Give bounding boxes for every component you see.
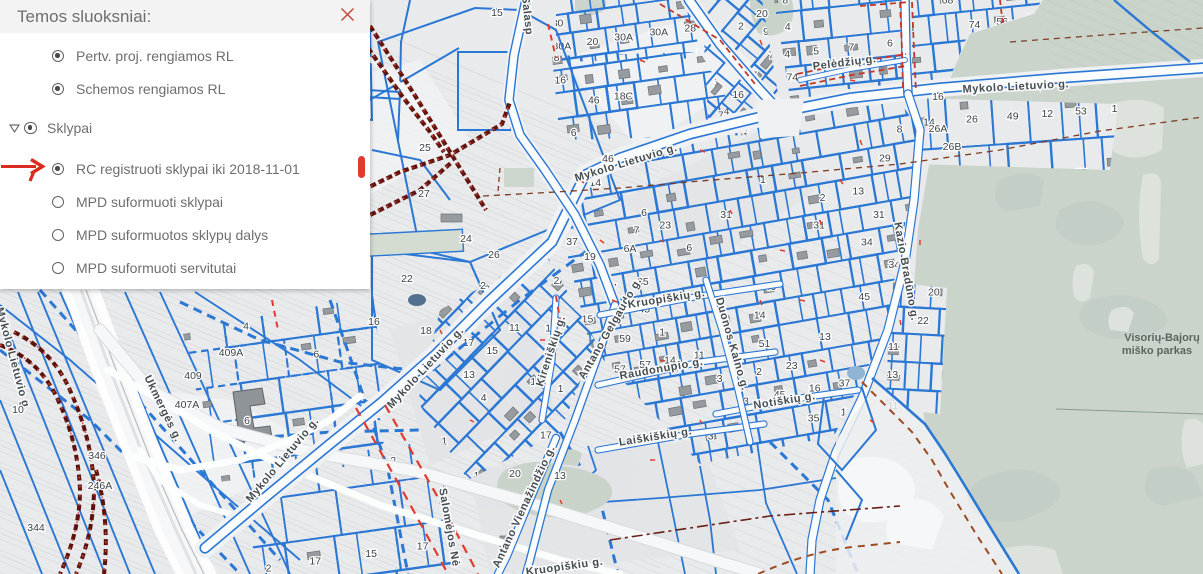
svg-text:20: 20 xyxy=(756,8,768,20)
svg-text:2: 2 xyxy=(820,192,826,204)
svg-text:17: 17 xyxy=(309,556,321,568)
svg-text:Visorių-Bajorų: Visorių-Bajorų xyxy=(1124,332,1200,344)
svg-text:18C: 18C xyxy=(614,90,634,102)
svg-text:20: 20 xyxy=(928,287,940,299)
svg-text:13: 13 xyxy=(463,369,475,381)
svg-text:13: 13 xyxy=(819,331,831,343)
svg-text:46: 46 xyxy=(602,153,614,165)
svg-text:6: 6 xyxy=(641,207,647,219)
svg-text:74: 74 xyxy=(969,19,981,31)
svg-text:11: 11 xyxy=(509,322,520,334)
svg-text:16: 16 xyxy=(554,75,566,87)
svg-text:11: 11 xyxy=(888,341,899,353)
svg-text:46: 46 xyxy=(588,95,600,107)
svg-text:31: 31 xyxy=(813,219,825,231)
svg-text:8: 8 xyxy=(897,123,903,135)
svg-text:246A: 246A xyxy=(88,480,113,492)
svg-text:20: 20 xyxy=(587,36,599,48)
svg-text:17: 17 xyxy=(417,541,429,553)
svg-text:23: 23 xyxy=(659,220,671,232)
svg-text:12: 12 xyxy=(1041,108,1053,120)
svg-text:1: 1 xyxy=(659,327,665,339)
svg-text:2: 2 xyxy=(738,20,744,32)
svg-text:13: 13 xyxy=(554,470,566,482)
svg-text:18: 18 xyxy=(420,325,432,337)
svg-text:6: 6 xyxy=(686,242,692,254)
svg-text:14: 14 xyxy=(754,309,766,321)
svg-text:13: 13 xyxy=(852,186,864,198)
svg-text:16: 16 xyxy=(932,91,944,103)
svg-text:19: 19 xyxy=(584,251,596,263)
svg-text:4: 4 xyxy=(785,21,791,33)
svg-text:7: 7 xyxy=(634,225,640,237)
svg-text:344: 344 xyxy=(27,522,45,534)
svg-text:31: 31 xyxy=(873,209,885,221)
svg-text:2: 2 xyxy=(266,562,272,574)
svg-text:miško parkas: miško parkas xyxy=(1122,345,1192,357)
svg-text:16: 16 xyxy=(732,89,744,101)
svg-text:37: 37 xyxy=(839,377,851,389)
svg-text:407A: 407A xyxy=(175,399,200,411)
svg-text:3: 3 xyxy=(717,373,723,385)
svg-text:37: 37 xyxy=(566,236,578,248)
svg-text:49: 49 xyxy=(1007,110,1019,122)
svg-text:8: 8 xyxy=(782,0,788,6)
svg-text:26A: 26A xyxy=(929,123,948,135)
svg-text:4: 4 xyxy=(481,392,487,404)
svg-text:28: 28 xyxy=(684,22,696,34)
svg-text:51: 51 xyxy=(759,338,771,350)
svg-text:2: 2 xyxy=(480,280,486,292)
svg-text:6: 6 xyxy=(244,415,250,427)
svg-text:45: 45 xyxy=(858,291,870,303)
svg-text:30A: 30A xyxy=(649,27,668,39)
svg-text:6A: 6A xyxy=(624,243,637,255)
svg-text:30A: 30A xyxy=(614,32,633,44)
svg-text:25: 25 xyxy=(419,142,431,154)
svg-text:2: 2 xyxy=(756,366,762,378)
svg-text:27: 27 xyxy=(418,188,430,200)
svg-text:20: 20 xyxy=(509,468,521,480)
svg-text:26: 26 xyxy=(966,113,978,125)
svg-text:68: 68 xyxy=(942,0,954,6)
svg-text:26: 26 xyxy=(488,249,500,261)
svg-text:53: 53 xyxy=(1075,106,1087,118)
svg-text:22: 22 xyxy=(401,273,413,285)
svg-text:15: 15 xyxy=(486,345,498,357)
svg-text:7: 7 xyxy=(848,42,854,54)
svg-text:6: 6 xyxy=(571,127,577,139)
svg-text:409: 409 xyxy=(184,370,202,382)
svg-text:6: 6 xyxy=(313,348,319,360)
svg-text:15: 15 xyxy=(365,548,377,560)
svg-text:59: 59 xyxy=(619,333,631,345)
svg-text:23: 23 xyxy=(786,360,798,372)
svg-text:24: 24 xyxy=(460,233,472,245)
svg-text:34: 34 xyxy=(861,237,873,249)
svg-text:6: 6 xyxy=(887,38,893,50)
svg-text:409A: 409A xyxy=(219,347,244,359)
svg-text:5: 5 xyxy=(813,45,819,57)
svg-text:15: 15 xyxy=(491,7,503,19)
svg-text:35: 35 xyxy=(808,412,820,424)
svg-text:29: 29 xyxy=(879,153,891,165)
svg-text:4: 4 xyxy=(243,320,249,332)
svg-text:13: 13 xyxy=(887,369,899,381)
svg-text:74: 74 xyxy=(786,71,798,83)
svg-text:1: 1 xyxy=(558,383,564,395)
svg-text:16: 16 xyxy=(368,316,380,328)
svg-text:10: 10 xyxy=(12,404,24,416)
svg-text:26B: 26B xyxy=(943,141,962,153)
svg-text:346: 346 xyxy=(88,450,106,462)
svg-text:4: 4 xyxy=(784,48,790,60)
